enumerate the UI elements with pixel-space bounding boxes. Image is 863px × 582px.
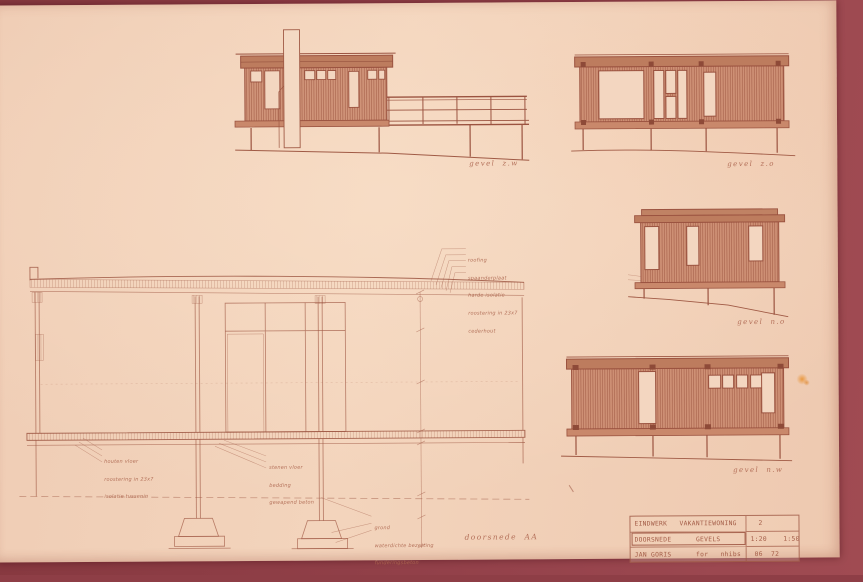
annotation-line: gewapend beton	[269, 501, 314, 507]
elevation-southeast-drawing	[569, 46, 800, 162]
annotation-line: funderingsbeton	[375, 561, 434, 567]
drawing-sheet: gevel z.w gevel z.o gevel n.o gevel n.w …	[0, 0, 840, 562]
annotation-line: waterdichte bezetting	[375, 543, 434, 549]
annotation-line: roostering in 23x7	[468, 311, 517, 317]
label-doorsnede-aa: doorsnede AA	[465, 532, 539, 541]
elevation-northwest-drawing	[558, 348, 794, 471]
orange-stain-small	[804, 380, 810, 386]
annotation-line: roostering in 23x7	[104, 477, 153, 483]
elevation-northeast-drawing	[628, 200, 794, 323]
annotation-line: roofing	[468, 258, 517, 264]
annotation-line: cederhout	[468, 329, 517, 335]
annotation-line: stenen vloer	[269, 465, 314, 471]
label-gevel-no: gevel n.o	[737, 318, 785, 326]
annotation-line: harde isolatie	[468, 294, 517, 300]
annotation-line: grond	[374, 526, 433, 532]
stray-pen-mark	[569, 485, 574, 492]
title-block-project: EINDWERK VAKANTIEWONING	[630, 516, 746, 532]
annotation-line: isolatie tussenin	[104, 495, 153, 501]
photo-of-architectural-drawing: { "photo": { "mount_color": "#8e3e46", "…	[0, 0, 863, 575]
label-gevel-zo: gevel z.o	[727, 160, 775, 168]
title-block-sheet-number: 2	[746, 516, 798, 531]
title-block-drawing-name: DOORSNEDE GEVELS	[631, 531, 747, 547]
title-block: EINDWERK VAKANTIEWONING 2 DOORSNEDE GEVE…	[629, 515, 799, 563]
annotation-stone-floor: stenen vloer bedding gewapend beton	[269, 454, 314, 519]
annotation-line: spaanderplaat	[468, 276, 517, 282]
annotation-line: bedding	[269, 483, 314, 489]
chimney	[283, 30, 300, 148]
annotation-roof-buildup: roofing spaanderplaat harde isolatie roo…	[468, 246, 518, 347]
annotation-wood-floor: houten vloer roostering in 23x7 isolatie…	[104, 448, 154, 513]
title-block-date: 06 72	[747, 546, 799, 561]
label-gevel-nw: gevel n.w	[733, 466, 783, 474]
annotation-line: houten vloer	[104, 459, 153, 465]
dimension-line	[416, 290, 426, 548]
elevation-southwest-drawing	[226, 24, 537, 166]
label-gevel-zw: gevel z.w	[469, 159, 518, 167]
title-block-author: JAN GORIS for nhibs	[631, 546, 747, 562]
annotation-foundation: grond waterdichte bezetting funderingsbe…	[374, 514, 434, 579]
title-block-scales: 1:20 1:50	[747, 531, 799, 546]
